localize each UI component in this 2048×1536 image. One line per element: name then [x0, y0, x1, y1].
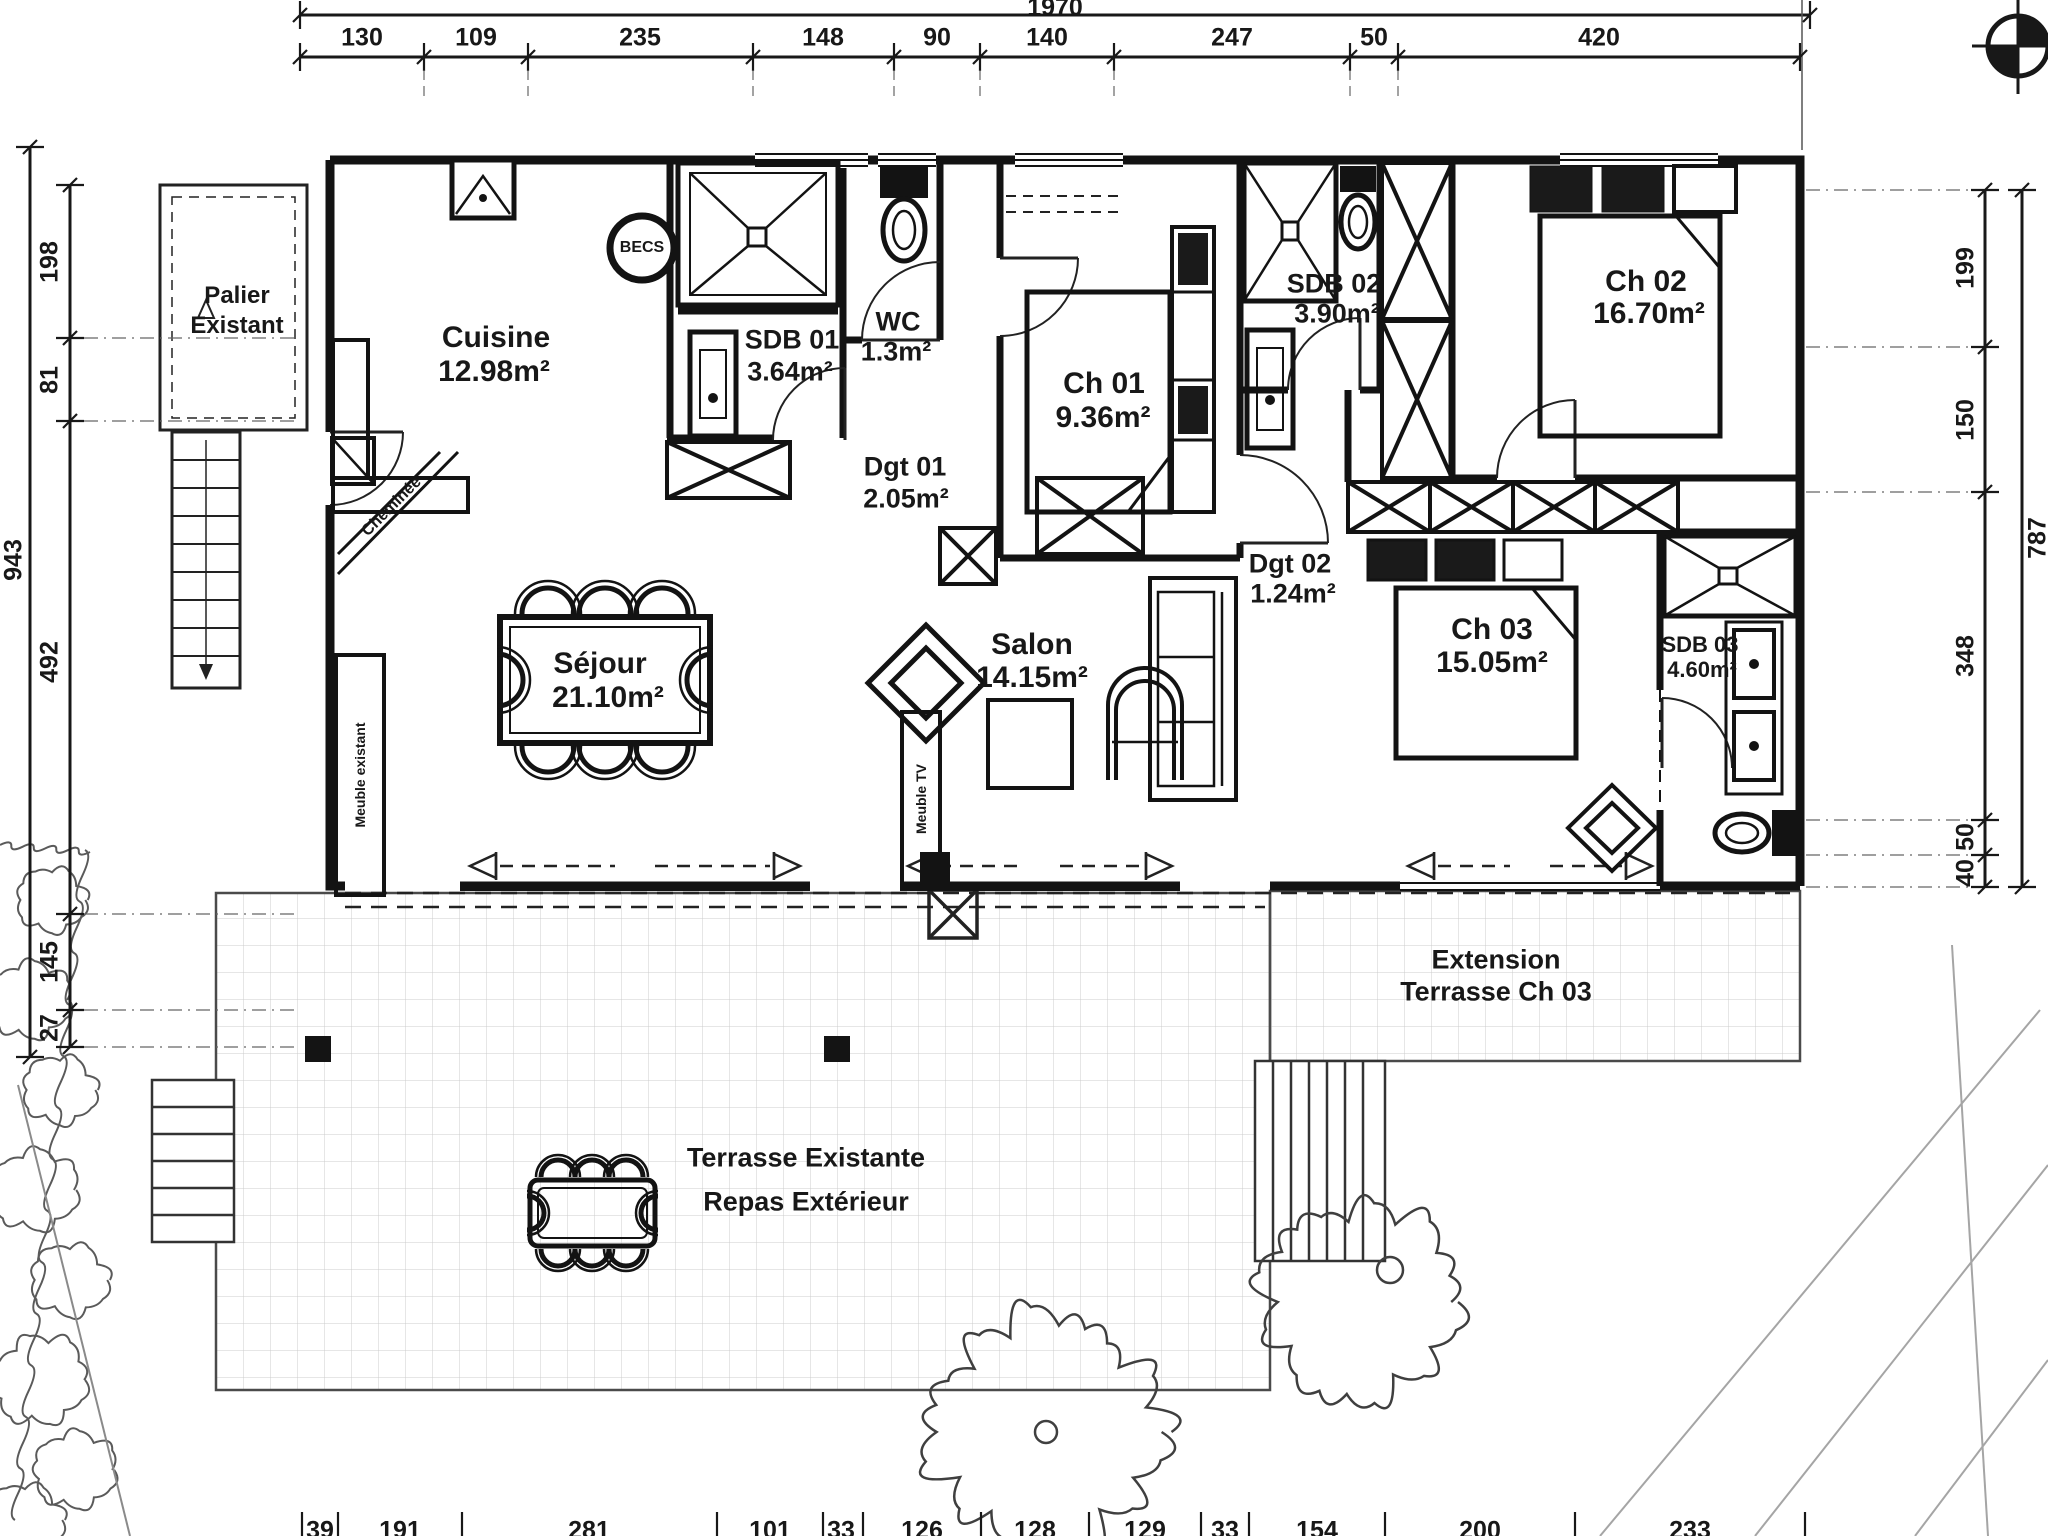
room-label-ch01: Ch 01 [1063, 369, 1145, 399]
terrace-pillar-cross [929, 890, 977, 938]
dim-bottom-6: 128 [1014, 1519, 1056, 1536]
room-area-sejour: 21.10m² [552, 683, 664, 713]
room-label-sdb02: SDB 02 [1287, 271, 1382, 298]
toilet-sdb03 [1715, 810, 1798, 856]
cabinet-dashes-ch01 [1006, 196, 1120, 212]
sink-sdb01 [690, 332, 736, 436]
dim-right-1: 150 [1954, 399, 1979, 441]
room-area-ch03: 15.05m² [1436, 648, 1548, 678]
room-label-dgt01: Dgt 01 [864, 454, 947, 481]
room-label-sdb03: SDB 03 [1661, 634, 1738, 656]
dim-top-3: 148 [802, 26, 844, 51]
dim-bottom-11: 233 [1669, 1519, 1711, 1536]
dim-left-2: 492 [38, 641, 63, 683]
tree-trunk-circle [1035, 1421, 1057, 1443]
dim-right-2: 348 [1954, 635, 1979, 677]
dim-top-6: 247 [1211, 26, 1253, 51]
dresser-ch03 [1368, 540, 1562, 580]
dim-left-4: 27 [38, 1014, 63, 1042]
room-area-ch01: 9.36m² [1055, 403, 1150, 433]
becs-label: BECS [620, 240, 664, 256]
dim-top-4: 90 [923, 26, 951, 51]
sliding-arrows [470, 852, 1652, 880]
dim-bottom-8: 33 [1211, 1519, 1239, 1536]
terrace-pillar [824, 1036, 850, 1062]
dim-left-1: 81 [38, 366, 63, 394]
dining-chairs [497, 581, 713, 779]
compass-crosshair-icon [1972, 0, 2048, 94]
label-terrasse-2: Repas Extérieur [703, 1189, 909, 1216]
dim-bottom-2: 281 [568, 1519, 610, 1536]
dim-left-0: 198 [38, 241, 63, 283]
terrace-existing [216, 893, 1270, 1390]
room-label-cuisine: Cuisine [442, 323, 550, 353]
shower-sdb01 [678, 163, 838, 311]
pillar-cross-sejour [940, 528, 996, 584]
label-extension-2: Terrasse Ch 03 [1400, 979, 1592, 1006]
meuble-existant-label: Meuble existant [353, 722, 367, 827]
floorplan-drawing [0, 0, 2048, 1536]
room-label-ch02: Ch 02 [1605, 267, 1687, 297]
dim-top-2: 235 [619, 26, 661, 51]
dim-top-0: 130 [341, 26, 383, 51]
dining-table [500, 617, 710, 743]
dim-bottom-9: 154 [1296, 1519, 1338, 1536]
stairs-palier [172, 300, 240, 688]
floorplan-page: Palier Existant Cuisine 12.98m² SDB 01 3… [0, 0, 2048, 1536]
dim-bottom-10: 200 [1459, 1519, 1501, 1536]
toilet-sdb02 [1340, 166, 1376, 249]
room-area-ch02: 16.70m² [1593, 299, 1705, 329]
dim-top-5: 140 [1026, 26, 1068, 51]
garden-path-line [18, 1085, 130, 1536]
dim-top-total: 1970 [1027, 0, 1083, 21]
terrace-pillar [305, 1036, 331, 1062]
closet-double [1382, 163, 1452, 478]
dim-right-4: 40 [1954, 859, 1979, 887]
tree-trunk-circle [1377, 1257, 1403, 1283]
exterior-stairs-extension [1255, 1061, 1385, 1261]
cabinet-sejour-top [667, 442, 790, 498]
room-label-salon: Salon [991, 630, 1073, 660]
room-area-sdb01: 3.64m² [747, 359, 833, 386]
dim-left-3: 145 [38, 941, 63, 983]
label-terrasse: Terrasse Existante [687, 1145, 925, 1172]
room-label-sejour: Séjour [553, 649, 646, 679]
dim-right-3: 50 [1954, 823, 1979, 851]
dim-bottom-0: 39 [306, 1519, 334, 1536]
room-area-sdb03: 4.60m² [1667, 659, 1737, 681]
dim-right-0: 199 [1954, 247, 1979, 289]
room-area-sdb02: 3.90m² [1294, 301, 1380, 328]
room-area-dgt02: 1.24m² [1250, 581, 1336, 608]
dim-left-total: 943 [2, 539, 27, 581]
kitchen-chimney [452, 160, 514, 218]
dim-top-1: 109 [455, 26, 497, 51]
dim-right-total: 787 [2026, 517, 2048, 559]
room-label-palier-2: Existant [190, 314, 283, 338]
coffee-table [988, 700, 1072, 788]
pillar-sejour [920, 852, 950, 886]
dim-bottom-4: 33 [827, 1519, 855, 1536]
dim-bottom-1: 191 [379, 1519, 421, 1536]
room-label-wc: WC [876, 309, 921, 336]
room-area-cuisine: 12.98m² [438, 357, 550, 387]
room-area-dgt01: 2.05m² [863, 486, 949, 513]
room-label-palier: Palier [204, 284, 269, 308]
toilet-wc [880, 166, 928, 261]
room-label-ch03: Ch 03 [1451, 615, 1533, 645]
dim-top-8: 420 [1578, 26, 1620, 51]
meuble-tv-label: Meuble TV [914, 764, 928, 834]
armchair-ch03 [1568, 785, 1656, 871]
room-area-wc: 1.3m² [861, 339, 932, 366]
label-extension: Extension [1431, 947, 1560, 974]
armchair-salon [868, 625, 984, 741]
room-label-sdb01: SDB 01 [745, 327, 840, 354]
shower-sdb03 [1664, 536, 1796, 616]
closet-ch01 [1037, 478, 1143, 554]
wardrobe-ch03 [1348, 482, 1678, 532]
exterior-stairs-left [152, 1080, 234, 1242]
dim-bottom-7: 129 [1124, 1519, 1166, 1536]
dim-bottom-5: 126 [901, 1519, 943, 1536]
dim-bottom-3: 101 [749, 1519, 791, 1536]
round-chair [1108, 668, 1182, 780]
room-area-salon: 14.15m² [976, 663, 1088, 693]
room-label-dgt02: Dgt 02 [1249, 551, 1332, 578]
dim-top-7: 50 [1360, 26, 1388, 51]
